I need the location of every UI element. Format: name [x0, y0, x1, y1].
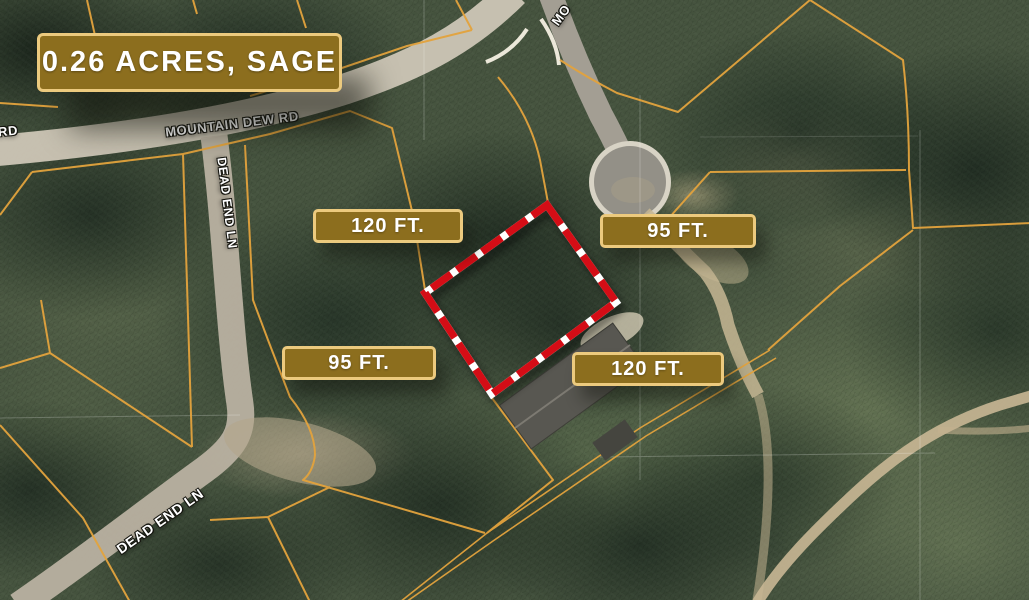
- dimension-label-right-depth: 95 FT.: [600, 214, 756, 248]
- dimension-label-bottom-width: 120 FT.: [572, 352, 724, 386]
- property-title-banner: 0.26 ACRES, SAGE: [37, 33, 342, 92]
- house-wing: [592, 419, 637, 460]
- dimension-label-left-depth: 95 FT.: [282, 346, 436, 380]
- dimension-label-top-width: 120 FT.: [313, 209, 463, 243]
- dirt-track: [757, 395, 768, 600]
- property-map: MOUNTAIN DEW RD RD MO DEAD END LN DEAD E…: [0, 0, 1029, 600]
- dirt-road: [757, 395, 1029, 600]
- dead-end-lane-surface: [18, 136, 241, 600]
- junction-curb-west: [486, 29, 527, 62]
- road-label-rd-partial: RD: [0, 122, 19, 139]
- dirt-road-spur: [938, 428, 1029, 431]
- cul-de-sac-dirt-patch: [611, 177, 655, 203]
